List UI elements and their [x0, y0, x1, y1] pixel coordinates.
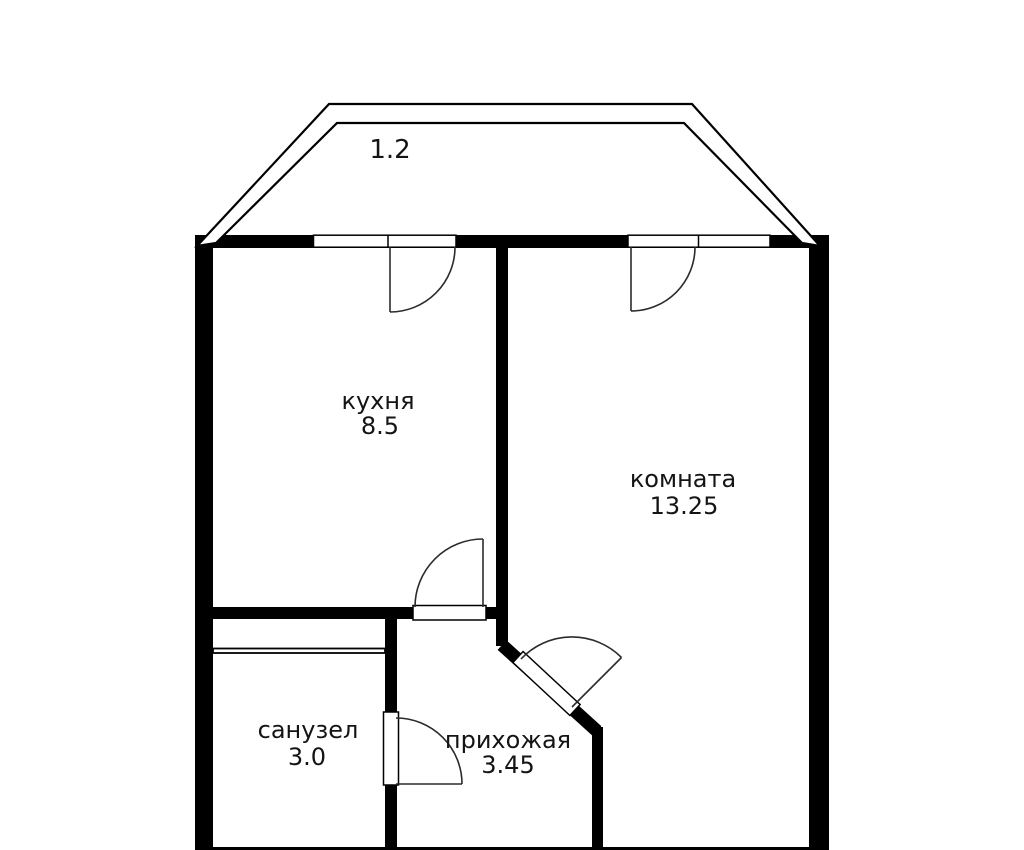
bathroom-area-label: 3.0	[288, 743, 326, 771]
kitchen-window-balcony-door-opening	[314, 235, 457, 247]
bathroom-door-opening	[384, 712, 399, 785]
left-exterior-wall	[195, 235, 213, 850]
kitchen-area-label: 8.5	[361, 412, 399, 440]
kitchen-door-opening	[413, 606, 486, 621]
kitchen-interior-door	[415, 539, 483, 607]
room-name-label: комната	[630, 465, 736, 493]
balcony-parapet	[197, 104, 820, 246]
kitchen-room-partition-wall	[496, 248, 508, 646]
door-swing-arc	[521, 637, 622, 659]
right-exterior-wall	[809, 235, 829, 850]
hallway-area-label: 3.45	[481, 751, 534, 779]
kitchen-name-label: кухня	[341, 387, 414, 415]
bathroom-duct-partition	[213, 649, 385, 654]
balcony-area-label: 1.2	[369, 135, 410, 165]
room-area-label: 13.25	[650, 492, 719, 520]
hallway-name-label: прихожая	[445, 726, 571, 754]
door-swing-arc	[631, 247, 695, 311]
bathroom-name-label: санузел	[258, 716, 359, 744]
room-entrance-door-opening	[513, 652, 580, 716]
room-balcony-door	[631, 247, 695, 311]
hallway-room-wall	[592, 727, 603, 850]
door-swing-arc	[415, 539, 483, 607]
kitchen-balcony-door	[390, 247, 455, 312]
floor-plan-drawing: 1.2 кухня 8.5 комната 13.25 санузел 3.0 …	[0, 0, 1024, 850]
door-leaf	[572, 658, 622, 708]
door-swing-arc	[390, 247, 455, 312]
floor-plan: 1.2 кухня 8.5 комната 13.25 санузел 3.0 …	[0, 0, 1024, 850]
